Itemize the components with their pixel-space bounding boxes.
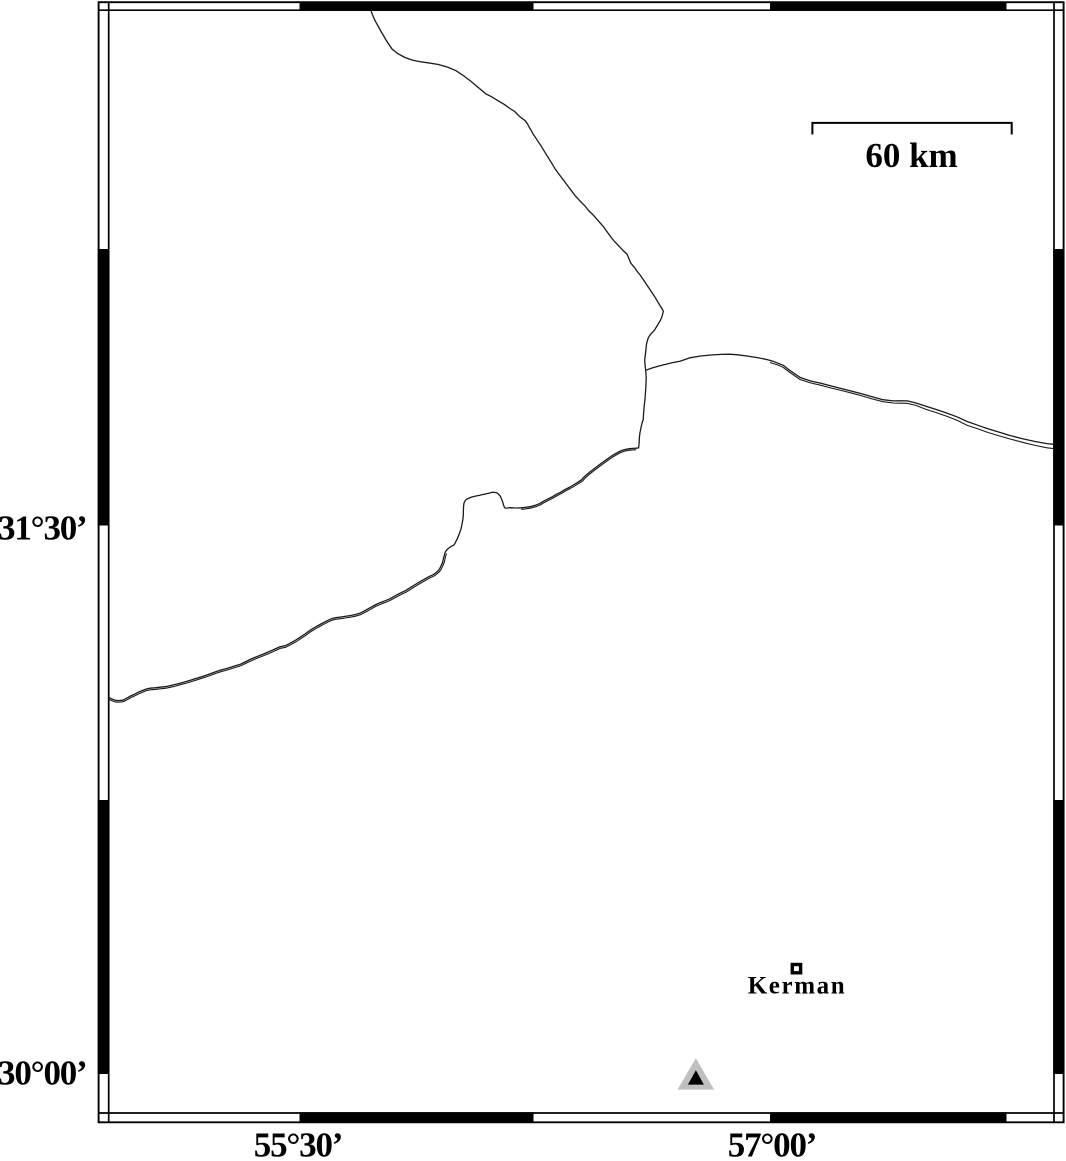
svg-text:Kerman: Kerman xyxy=(748,973,846,1000)
svg-text:60 km: 60 km xyxy=(865,136,957,175)
svg-text:57°00’: 57°00’ xyxy=(728,1126,816,1161)
svg-text:30°00’: 30°00’ xyxy=(0,1054,87,1093)
svg-text:55°30’: 55°30’ xyxy=(254,1126,342,1161)
svg-text:31°30’: 31°30’ xyxy=(0,509,87,548)
